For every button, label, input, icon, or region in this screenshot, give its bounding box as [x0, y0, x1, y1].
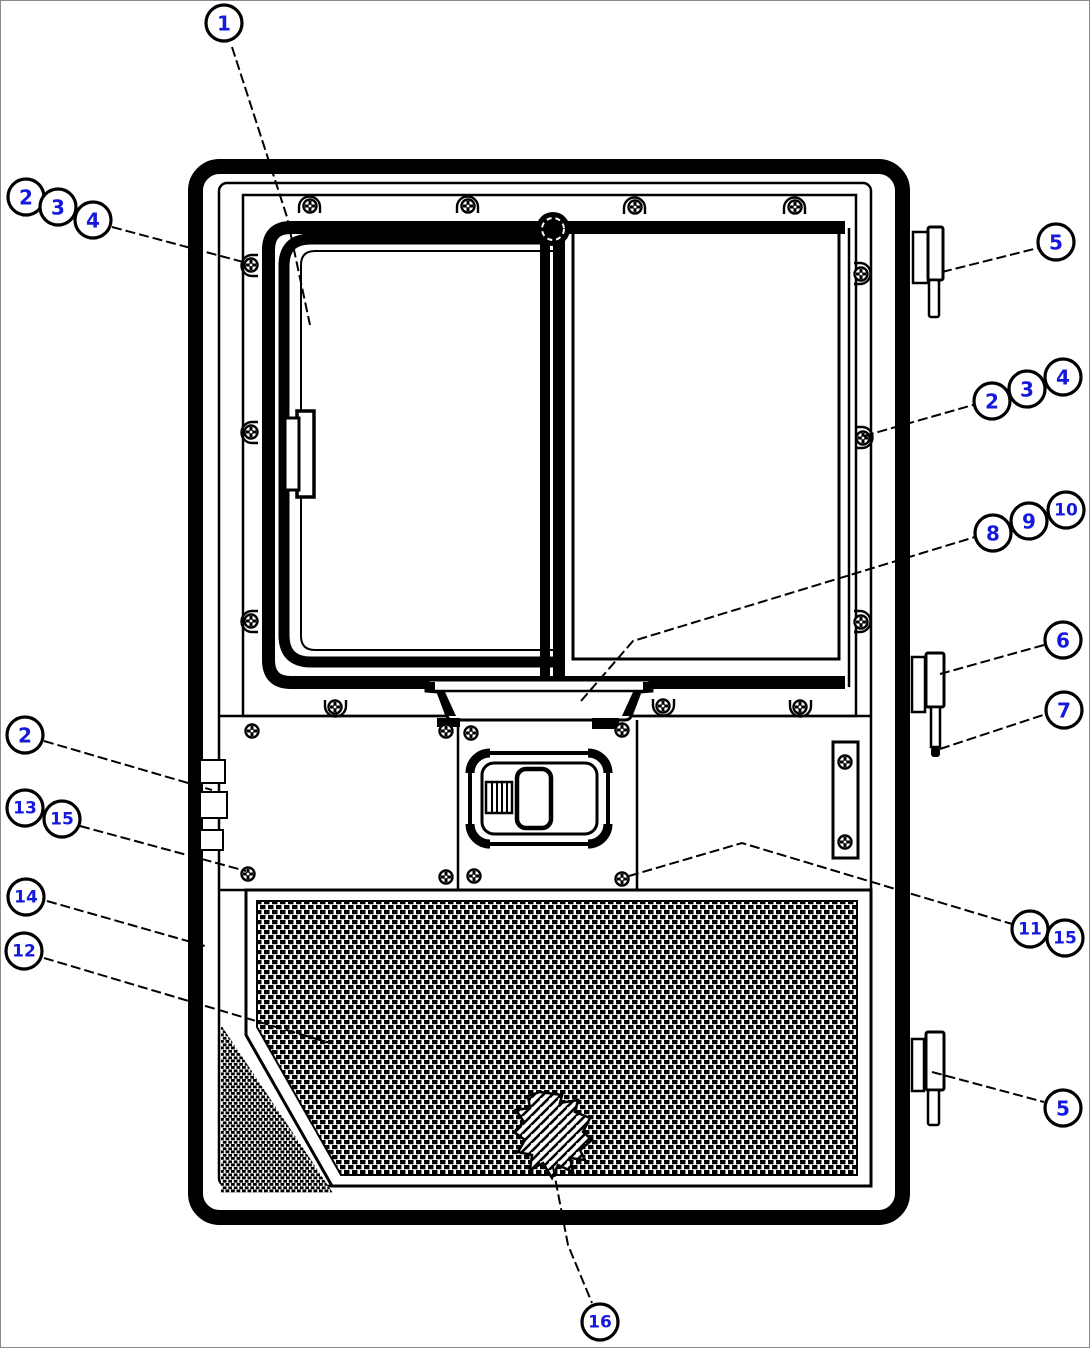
- callout-15[interactable]: 15: [44, 801, 80, 837]
- callout-7[interactable]: 7: [1046, 692, 1082, 728]
- svg-text:6: 6: [1056, 629, 1070, 653]
- callout-8[interactable]: 8: [975, 515, 1011, 551]
- callout-3[interactable]: 3: [40, 189, 76, 225]
- svg-text:2: 2: [19, 186, 33, 210]
- callout-2[interactable]: 2: [7, 717, 43, 753]
- svg-text:5: 5: [1056, 1097, 1070, 1121]
- callout-4[interactable]: 4: [1045, 359, 1081, 395]
- parts-diagram-canvas: 123454321098672131514121511516: [0, 0, 1090, 1348]
- screw: [465, 727, 478, 740]
- door-edge-keepers: [200, 760, 227, 850]
- svg-text:4: 4: [86, 209, 100, 233]
- callout-1[interactable]: 1: [206, 5, 242, 41]
- svg-text:16: 16: [588, 1313, 612, 1333]
- svg-text:4: 4: [1056, 366, 1070, 390]
- callout-9[interactable]: 9: [1011, 503, 1047, 539]
- svg-text:12: 12: [12, 942, 36, 962]
- callout-5[interactable]: 5: [1045, 1090, 1081, 1126]
- callout-5[interactable]: 5: [1038, 224, 1074, 260]
- screw: [616, 873, 629, 886]
- door-latch-handle: [470, 753, 608, 844]
- round-knob: [536, 212, 570, 246]
- svg-text:15: 15: [50, 810, 74, 830]
- screw: [246, 725, 259, 738]
- callout-13[interactable]: 13: [7, 790, 43, 826]
- screw: [440, 725, 453, 738]
- svg-text:13: 13: [13, 799, 37, 819]
- callout-10[interactable]: 10: [1048, 492, 1084, 528]
- svg-text:9: 9: [1022, 510, 1036, 534]
- svg-text:2: 2: [18, 724, 32, 748]
- callout-12[interactable]: 12: [6, 933, 42, 969]
- callout-3[interactable]: 3: [1009, 371, 1045, 407]
- window-latch-handle: [285, 411, 314, 497]
- svg-text:5: 5: [1049, 231, 1063, 255]
- screw: [440, 871, 453, 884]
- callout-11[interactable]: 11: [1012, 911, 1048, 947]
- callout-16[interactable]: 16: [582, 1304, 618, 1340]
- svg-text:2: 2: [985, 390, 999, 414]
- svg-text:3: 3: [51, 196, 65, 220]
- screw: [839, 836, 852, 849]
- screw: [468, 870, 481, 883]
- callout-4[interactable]: 4: [75, 202, 111, 238]
- svg-text:8: 8: [986, 522, 1000, 546]
- hinge-pin-tip: [931, 747, 940, 757]
- callout-14[interactable]: 14: [8, 879, 44, 915]
- svg-text:15: 15: [1053, 929, 1077, 949]
- svg-text:1: 1: [217, 12, 231, 36]
- callout-2[interactable]: 2: [974, 383, 1010, 419]
- svg-text:14: 14: [14, 888, 38, 908]
- callout-15[interactable]: 15: [1047, 920, 1083, 956]
- svg-text:7: 7: [1057, 699, 1071, 723]
- svg-text:3: 3: [1020, 378, 1034, 402]
- svg-text:10: 10: [1054, 501, 1078, 521]
- screw: [616, 724, 629, 737]
- parts-diagram-page: 123454321098672131514121511516: [0, 0, 1090, 1348]
- svg-text:11: 11: [1018, 920, 1042, 940]
- screw: [839, 756, 852, 769]
- callout-6[interactable]: 6: [1045, 622, 1081, 658]
